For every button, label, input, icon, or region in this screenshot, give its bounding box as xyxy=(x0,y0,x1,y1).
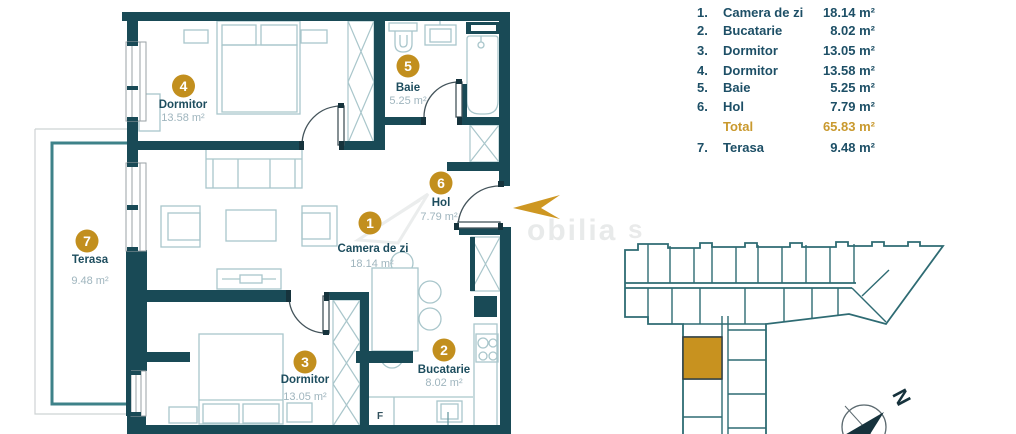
svg-text:7: 7 xyxy=(83,233,91,249)
svg-text:13.58 m²: 13.58 m² xyxy=(161,112,205,124)
svg-text:7.79 m²: 7.79 m² xyxy=(420,211,458,223)
svg-text:18.14 m²: 18.14 m² xyxy=(350,258,394,270)
svg-text:5.: 5. xyxy=(697,80,708,95)
svg-text:Baie: Baie xyxy=(723,80,750,95)
svg-text:8.02 m²: 8.02 m² xyxy=(425,377,463,389)
svg-text:2: 2 xyxy=(440,342,448,358)
svg-text:6: 6 xyxy=(437,175,445,191)
svg-text:Dormitor: Dormitor xyxy=(159,99,208,111)
svg-text:13.05 m²: 13.05 m² xyxy=(823,43,876,58)
svg-text:6.: 6. xyxy=(697,99,708,114)
svg-text:Terasa: Terasa xyxy=(723,140,765,155)
svg-text:8.02 m²: 8.02 m² xyxy=(830,23,875,38)
svg-text:Camera de zi: Camera de zi xyxy=(338,243,409,255)
svg-text:Dormitor: Dormitor xyxy=(723,63,778,78)
svg-text:7.: 7. xyxy=(697,140,708,155)
svg-text:4: 4 xyxy=(180,78,188,94)
svg-text:5.25 m²: 5.25 m² xyxy=(830,80,875,95)
svg-text:3.: 3. xyxy=(697,43,708,58)
svg-text:65.83 m²: 65.83 m² xyxy=(823,119,876,134)
svg-text:Dormitor: Dormitor xyxy=(723,43,778,58)
svg-text:5.25 m²: 5.25 m² xyxy=(389,95,427,107)
svg-text:Hol: Hol xyxy=(432,197,451,209)
svg-text:Dormitor: Dormitor xyxy=(281,374,330,386)
svg-text:Baie: Baie xyxy=(396,82,420,94)
svg-text:3: 3 xyxy=(301,354,309,370)
svg-text:Bucatarie: Bucatarie xyxy=(723,23,782,38)
svg-text:18.14 m²: 18.14 m² xyxy=(823,5,876,20)
svg-text:Camera de zi: Camera de zi xyxy=(723,5,803,20)
svg-text:1.: 1. xyxy=(697,5,708,20)
svg-text:9.48 m²: 9.48 m² xyxy=(71,275,109,287)
svg-text:5: 5 xyxy=(404,58,412,74)
svg-text:7.79 m²: 7.79 m² xyxy=(830,99,875,114)
svg-text:s: s xyxy=(628,214,642,244)
svg-text:Terasa: Terasa xyxy=(72,254,109,266)
svg-text:9.48 m²: 9.48 m² xyxy=(830,140,875,155)
svg-text:Hol: Hol xyxy=(723,99,744,114)
svg-text:F: F xyxy=(377,411,383,422)
svg-text:13.58 m²: 13.58 m² xyxy=(823,63,876,78)
svg-text:Bucatarie: Bucatarie xyxy=(418,364,470,376)
svg-text:4.: 4. xyxy=(697,63,708,78)
svg-text:2.: 2. xyxy=(697,23,708,38)
svg-text:obilia: obilia xyxy=(527,214,617,247)
svg-text:Total: Total xyxy=(723,119,753,134)
svg-text:13.05 m²: 13.05 m² xyxy=(283,391,327,403)
svg-text:1: 1 xyxy=(366,215,374,231)
